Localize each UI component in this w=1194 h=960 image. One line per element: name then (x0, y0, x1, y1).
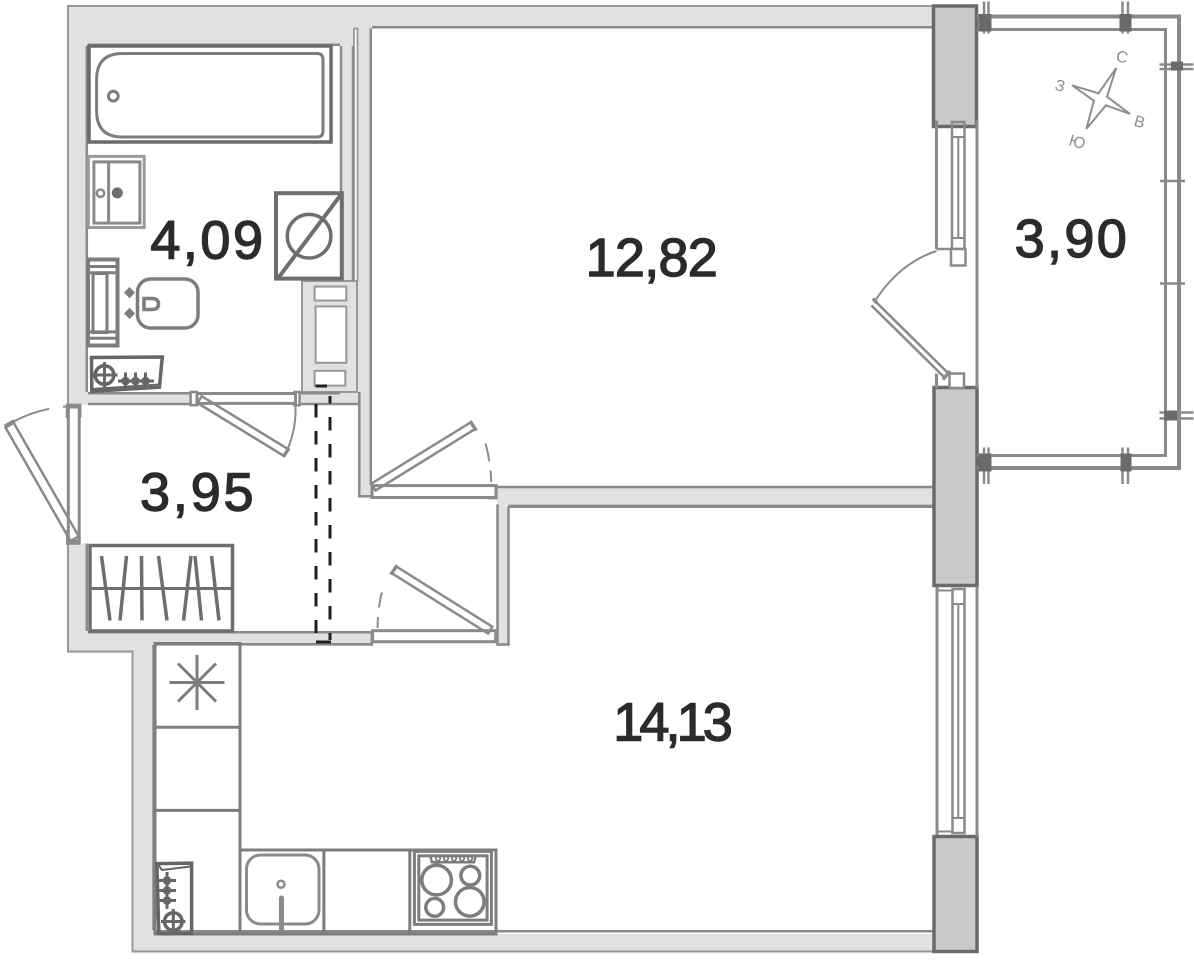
svg-text:3,90: 3,90 (1015, 209, 1127, 269)
svg-text:4,09: 4,09 (150, 211, 263, 271)
svg-text:14,13: 14,13 (613, 693, 733, 753)
svg-text:3,95: 3,95 (140, 462, 254, 522)
svg-text:12,82: 12,82 (586, 228, 718, 288)
